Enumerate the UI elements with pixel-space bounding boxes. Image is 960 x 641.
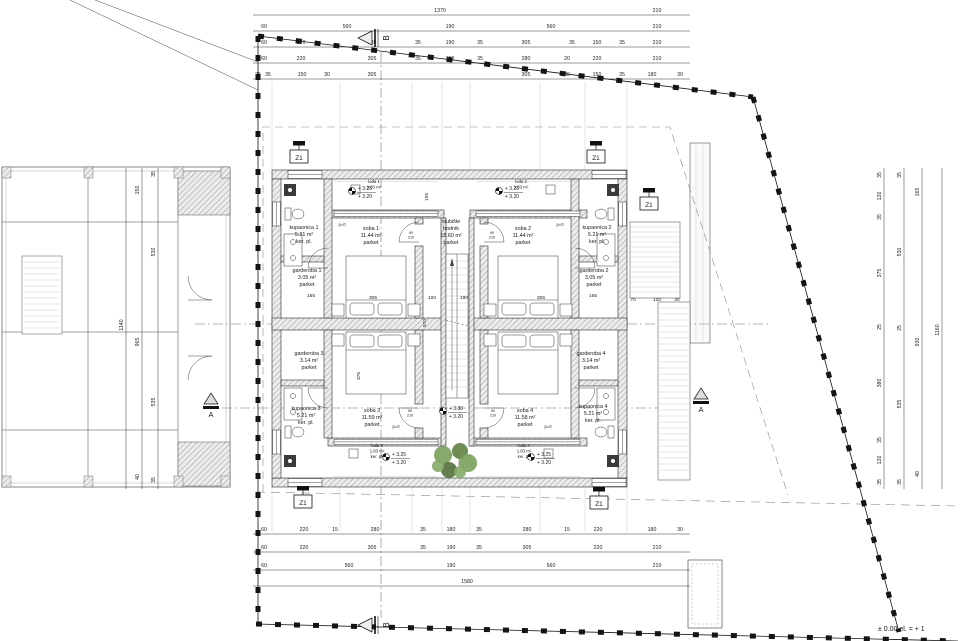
central-staircase [446,254,468,398]
dimension-label: 35 [476,527,482,533]
room-label: soba 4 [517,408,533,414]
dimension-label: 1160 [935,324,941,335]
annotation: ± 0.00 el. = + 1 [878,626,925,633]
dimension-label: 15 [332,527,338,533]
room-label: 5.21 m² [297,413,315,419]
elevation-value: + 3.25 [392,452,406,458]
dimension-label: 1580 [461,579,473,585]
dimension-label: 35 [897,479,903,485]
room-label: soba 1 [363,226,379,232]
room-label: 11.59 m² [362,415,383,421]
dimension-label: 280 [371,527,380,533]
dimension-label: 35 [420,527,426,533]
dimension-label: 35 [420,545,426,551]
dimension-label: 560 [547,563,556,569]
dimension-label: 30 [677,72,683,78]
room-label: parket [444,240,459,246]
dimension-label: 40 [135,474,141,480]
detail-marker-label: Z1 [299,500,307,507]
dimension-label: 210 [653,56,662,62]
dimension-label: 35 [619,72,625,78]
dimension-label: 210 [653,8,662,14]
dimension-label: 180 [446,56,455,62]
dimension-label: 35 [151,171,157,177]
dimension-label: 220 [594,545,603,551]
dimension-label: 190 [446,40,455,46]
dimension-label: 15 [564,527,570,533]
room-label: parket [584,365,599,371]
dimension-label: 120 [653,297,661,303]
elevation-value: + 3.20 [537,460,551,466]
dimension-label: 180 [648,72,657,78]
room-label: stubište [442,219,461,225]
elevation-value: + 3.25 [505,186,519,192]
loggia-label: lođa 2 [515,179,527,184]
room-label: soba 2 [515,226,531,232]
room-label: kupaonica 3 [291,406,320,412]
dimension-label: 375 [356,372,362,380]
loggia-label: ker. pl. [371,454,384,459]
dimension-label: 535 [897,400,903,409]
dimension-label: 180 [648,527,657,533]
dimension-label: 30 [324,72,330,78]
dimension-label: 60 [261,56,267,62]
dimension-label: 35 [415,56,421,62]
dimension-label: 930 [915,338,921,347]
dimension-label: 70 [630,297,636,303]
section-marker-label: B [382,35,391,40]
elevation-value: + 3.25 [358,186,372,192]
dimension-label: 165 [915,188,921,197]
toilet-icon [595,208,614,220]
section-marker-label: A [208,410,213,419]
room-label: ker. pl. [585,418,601,424]
fixture-box [349,449,358,458]
door-size-label: 210 [408,236,414,240]
dimension-label: 560 [345,563,354,569]
elevation-value: + 3.20 [449,414,463,420]
dimension-label: 150 [135,186,141,195]
room-label: garderoba 3 [294,351,323,357]
dimension-label: 120 [877,456,883,465]
dimension-label: 380 [877,379,883,388]
loggia-label: 1.83 m² [517,449,532,454]
room-label: garderoba 2 [579,268,608,274]
dimension-label: 35 [151,477,157,483]
dimension-label: 220 [300,545,309,551]
dimension-label: 190 [447,563,456,569]
dimension-label: 190 [446,24,455,30]
dimension-label: 150 [593,72,602,78]
neighbor-building [2,167,230,487]
room-label: garderoba 1 [292,268,321,274]
dimension-label: 20 [564,56,570,62]
room-label: 11.58 m² [515,415,536,421]
washer-icon [607,184,619,196]
dimension-label: 155 [424,193,430,201]
detail-marker-z1: Z1 [290,141,308,163]
dimension-label: 35 [476,545,482,551]
dimension-label: 35 [897,172,903,178]
dimension-label: 40 [915,471,921,477]
room-label: kupaonica 2 [582,225,611,231]
toilet-icon [595,426,614,438]
detail-marker-label: Z1 [592,155,600,162]
elevation-marker: + 3.25+ 3.20 [496,186,524,200]
dimension-label: 35 [477,56,483,62]
dimension-label: 180 [447,527,456,533]
dimension-label: 530 [151,248,157,257]
dimension-label: 165 [589,293,597,299]
room-label: ker. pl. [298,420,314,426]
room-label: 3.14 m² [300,358,318,364]
elevation-value: + 3.30 [449,406,463,412]
dimension-label: 305 [369,295,377,301]
dimension-label: 305 [368,72,377,78]
neighbor-staircase [22,256,62,334]
room-label: garderoba 4 [576,351,605,357]
dimension-label: 100 [428,295,436,301]
room-label: parket [364,240,379,246]
elevation-value: + 3.20 [392,460,406,466]
room-label: 3.05 m² [298,275,316,281]
door-size-label: 90 [490,231,494,235]
dimension-label: 570 [422,319,428,327]
dimension-label: 220 [593,56,602,62]
door-size-label: 210 [489,236,495,240]
room-label: parket [300,282,315,288]
loggia-label: lođa 3 [371,443,383,448]
dimension-label: 25 [877,324,883,330]
exterior-stairs-bottom [658,302,690,480]
toilet-icon [285,208,304,220]
dimension-label: 305 [368,56,377,62]
room-label: kupaonica 1 [289,225,318,231]
dimension-label: 35 [877,172,883,178]
washer-icon [607,455,619,467]
loggia-label: lođa 4 [518,443,530,448]
dimension-label: 60 [261,545,267,551]
dimension-label: 165 [307,293,315,299]
dimension-label: 305 [522,72,531,78]
washer-icon [284,184,296,196]
fixture-box [546,185,555,194]
room-label: kupaonica 4 [578,404,607,410]
plant-icon [432,443,477,478]
dimension-label: 30 [564,72,570,78]
dimension-label: 210 [653,40,662,46]
toilet-icon [285,426,304,438]
floor-plan-drawing: 1370210605601905602106022030535190353053… [0,0,960,641]
detail-marker-z1: Z1 [294,486,312,508]
bed [346,332,406,394]
dimension-label: 560 [547,24,556,30]
dimension-label: 210 [653,24,662,30]
dimension-label: 535 [151,398,157,407]
room-label: hodnik [443,226,459,232]
door-size-label: 210 [490,414,496,418]
room-label: 3.14 m² [582,358,600,364]
room-label: 11.44 m² [513,233,534,239]
room-label: 3.05 m² [585,275,603,281]
loggia-label: 1.83 m² [370,449,385,454]
elevation-value: + 3.20 [505,194,519,200]
elevation-value: + 3.20 [358,194,372,200]
dimension-label: 375 [877,269,883,278]
dimension-label: 530 [897,248,903,257]
detail-marker-label: Z1 [295,155,303,162]
section-marker-a: A [693,388,709,414]
bed [498,256,558,318]
section-marker-label: B [382,622,391,627]
door-size-label: 90 [409,231,413,235]
dimension-label: 305 [523,545,532,551]
room-label: parket [587,282,602,288]
dimension-label: 280 [522,56,531,62]
dimension-label: 35 [877,437,883,443]
dimension-label: 190 [460,295,468,301]
dimension-label: 1370 [434,8,446,14]
floor-plan-canvas: 1370210605601905602106022030535190353053… [0,0,960,641]
dimension-label: 60 [261,24,267,30]
dimension-label: 35 [477,40,483,46]
elevation-marker: + 3.25+ 3.20 [349,186,377,200]
room-label: 11.44 m² [361,233,382,239]
dimension-label: 25 [255,72,261,78]
door-size-label: 210 [407,414,413,418]
detail-marker-label: Z1 [595,501,603,508]
dimension-label: 305 [368,545,377,551]
detail-marker-z1: Z1 [590,487,608,509]
door-size-label: 90 [491,409,495,413]
detail-marker-z1: Z1 [640,188,658,210]
elevation-marker: + 3.25+ 3.20 [383,452,411,466]
dimension-label: 560 [343,24,352,30]
dimension-label: 220 [297,56,306,62]
room-label: soba 3 [364,408,380,414]
annotation: p=0 [556,222,564,227]
section-marker-b: B [358,29,391,47]
room-label: 5.21 m² [295,232,313,238]
detail-marker-label: Z1 [645,202,653,209]
dimension-label: 1140 [119,319,125,330]
dimension-label: 35 [265,72,271,78]
annotation: p=0 [392,424,400,429]
room-label: parket [516,240,531,246]
elevation-value: + 3.25 [537,452,551,458]
dimension-label: 30 [674,297,680,303]
elevation-marker: + 3.25+ 3.20 [528,452,556,466]
dimension-label: 210 [653,563,662,569]
dimension-label: 305 [537,295,545,301]
dimension-label: 150 [298,72,307,78]
dimension-label: 25 [897,325,903,331]
room-label: 5.21 m² [588,232,606,238]
dimension-label: 210 [653,545,662,551]
dimension-label: 305 [522,40,531,46]
dimension-label: 220 [300,527,309,533]
room-label: 5.21 m² [584,411,602,417]
bed [498,332,558,394]
dimension-label: 220 [594,527,603,533]
dimension-label: 190 [447,545,456,551]
exterior-stairs-top [630,222,680,298]
detail-marker-z1: Z1 [587,141,605,163]
dimension-label: 35 [569,40,575,46]
room-label: 15.60 m² [440,233,461,239]
dimension-label: 280 [523,527,532,533]
dimension-label: 120 [877,192,883,201]
annotation: p=0 [544,424,552,429]
dimension-label: 220 [297,40,306,46]
room-label: ker. pl. [296,239,312,245]
section-marker-label: A [698,405,703,414]
dimension-label: 35 [415,40,421,46]
section-marker-b: B [358,616,391,634]
dimension-label: 35 [619,40,625,46]
dimension-label: 30 [677,527,683,533]
dimension-label: 965 [135,338,141,347]
bed [346,256,406,318]
door-size-label: 90 [408,409,412,413]
room-label: parket [302,365,317,371]
dimension-label: 60 [261,527,267,533]
room-label: ker. pl. [589,239,605,245]
dimension-label: 60 [261,563,267,569]
dimension-label: 35 [877,479,883,485]
washer-icon [284,455,296,467]
dimension-label: 35 [877,214,883,220]
room-label: parket [365,422,380,428]
room-label: parket [518,422,533,428]
loggia-label: lođa 1 [368,179,380,184]
annotation: p=0 [338,222,346,227]
dimension-label: 150 [593,40,602,46]
dimension-label: 60 [261,40,267,46]
